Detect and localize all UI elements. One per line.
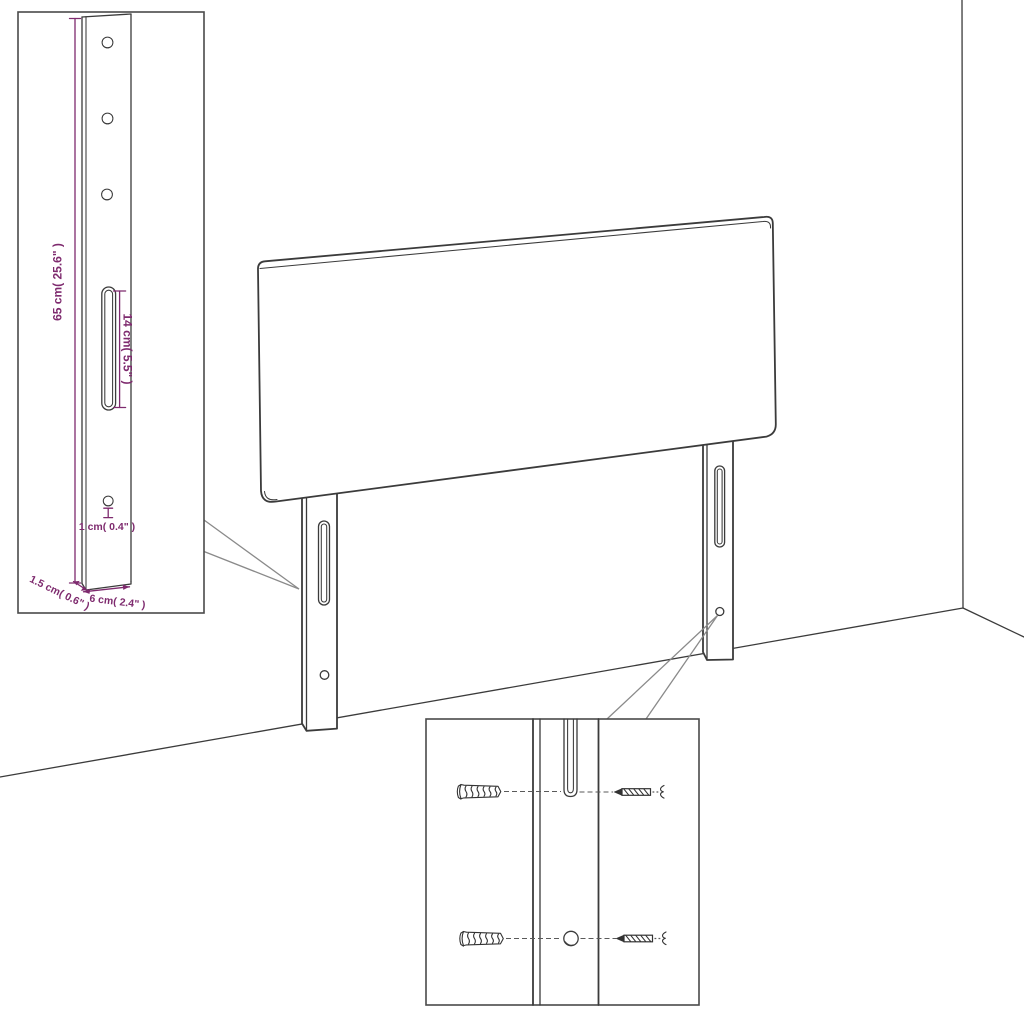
- callout-line: [204, 552, 299, 590]
- height-dimension: 65 cm( 25.6" ): [51, 19, 81, 584]
- wall-corner-line: [962, 0, 963, 608]
- mounting-detail-inset: [426, 719, 699, 1005]
- width-dimension-label: 6 cm( 2.4" ): [89, 593, 146, 612]
- callout-wedge-leg-detail: [204, 520, 299, 589]
- left-mounting-leg: [302, 488, 337, 731]
- inset-border: [426, 719, 699, 1005]
- slot-dimension-label: 14 cm( 5.5" ): [121, 313, 135, 384]
- leg-detail-inset: 65 cm( 25.6" ) 14 cm( 5.5" ) 1 cm( 0.4" …: [18, 12, 204, 613]
- hole-dimension: 1 cm( 0.4" ): [79, 508, 135, 533]
- leg-detail-drawing: [82, 14, 131, 590]
- mounting-slot-inner: [105, 290, 113, 407]
- panel-outline: [258, 217, 776, 502]
- leg-top-edge: [82, 14, 131, 17]
- hole-highlight: [103, 46, 110, 48]
- headboard-assembly-diagram: 65 cm( 25.6" ) 14 cm( 5.5" ) 1 cm( 0.4" …: [0, 0, 1024, 1024]
- mounting-slot: [102, 287, 116, 410]
- diagram-canvas: 65 cm( 25.6" ) 14 cm( 5.5" ) 1 cm( 0.4" …: [0, 0, 1024, 1024]
- hole-highlight: [103, 198, 110, 200]
- callout-line: [204, 520, 299, 589]
- floor-line-right: [963, 608, 1024, 637]
- callout-line: [646, 616, 718, 720]
- hole-highlight: [103, 122, 110, 124]
- headboard-panel: [258, 217, 776, 502]
- dimension-bracket: [104, 508, 113, 517]
- hole-dimension-label: 1 cm( 0.4" ): [79, 521, 135, 533]
- height-dimension-label: 65 cm( 25.6" ): [51, 243, 65, 321]
- arrowhead: [123, 585, 130, 590]
